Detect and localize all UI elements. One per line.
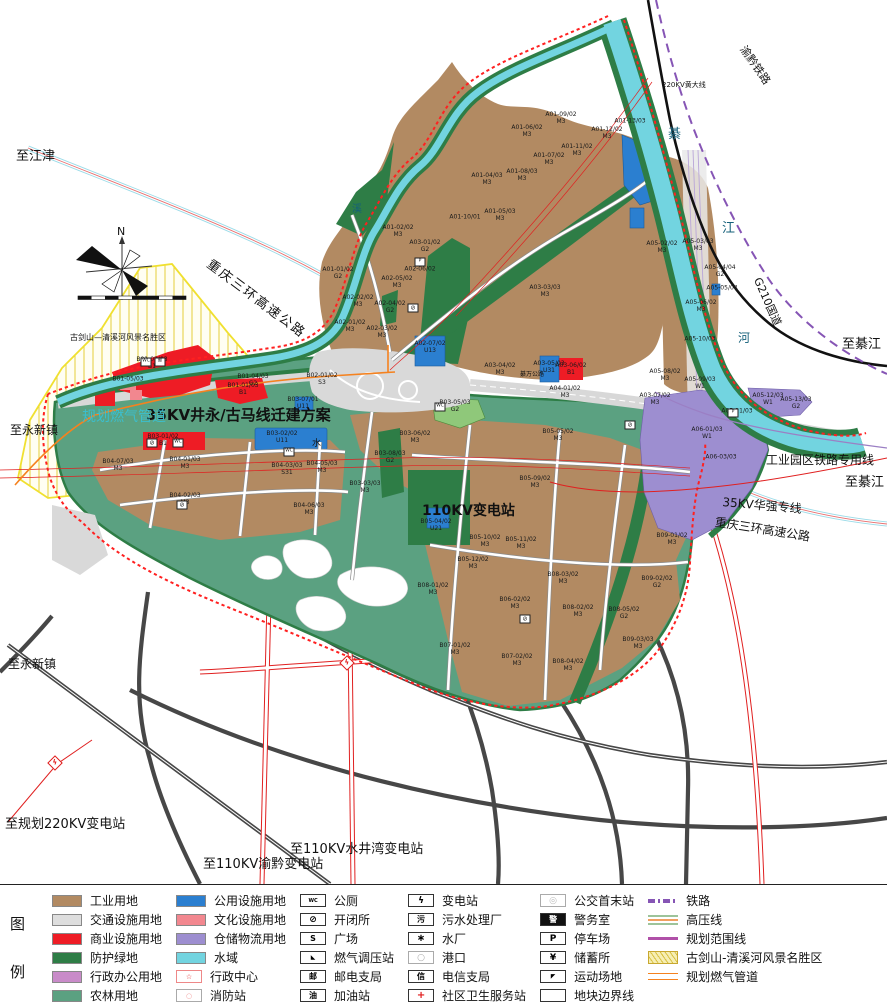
legend-swatch-symbol-icon: WC bbox=[300, 894, 326, 907]
legend-label: 变电站 bbox=[442, 892, 478, 909]
legend-label: 工业用地 bbox=[90, 892, 138, 909]
legend-swatch-hatch-icon bbox=[648, 951, 678, 964]
legend-label: 电信支局 bbox=[442, 968, 490, 985]
legend-label: 停车场 bbox=[574, 930, 610, 947]
legend-label: 燃气调压站 bbox=[334, 949, 394, 966]
scale-bar bbox=[78, 296, 186, 300]
legend-column-3: WC公厕⊘开闭所S广场◣燃气调压站邮邮电支局油加油站 bbox=[300, 891, 394, 1005]
legend-label: 铁路 bbox=[686, 892, 710, 909]
legend-swatch-symbol-icon: 油 bbox=[300, 989, 326, 1002]
legend-swatch-symbol-icon: ⊘ bbox=[300, 913, 326, 926]
legend-swatch-symbol-icon: ◤ bbox=[540, 970, 566, 983]
legend-item: 古剑山-清溪河风景名胜区 bbox=[648, 948, 822, 967]
legend-panel: 图 例 工业用地交通设施用地商业设施用地防护绿地行政办公用地农林用地公用设施用地… bbox=[0, 884, 887, 1006]
legend-label: 农林用地 bbox=[90, 987, 138, 1004]
legend-item: ◎公交首末站 bbox=[540, 891, 634, 910]
legend-swatch-symbol-icon: ○ bbox=[408, 951, 434, 964]
legend-swatch-fill-icon bbox=[176, 933, 206, 945]
legend-swatch-symbol-icon: 污 bbox=[408, 913, 434, 926]
legend-item: 邮邮电支局 bbox=[300, 967, 394, 986]
map-canvas bbox=[0, 0, 887, 884]
legend-item: 仓储物流用地 bbox=[176, 929, 286, 948]
legend-label: 消防站 bbox=[210, 987, 246, 1004]
legend-label: 污水处理厂 bbox=[442, 911, 502, 928]
legend-swatch-symbol-icon: ∗ bbox=[408, 932, 434, 945]
legend-swatch-fill-icon bbox=[52, 971, 82, 983]
legend-column-1: 工业用地交通设施用地商业设施用地防护绿地行政办公用地农林用地 bbox=[52, 891, 162, 1005]
legend-label: 运动场地 bbox=[574, 968, 622, 985]
legend-title-char-2: 例 bbox=[10, 961, 25, 982]
legend-item: 公用设施用地 bbox=[176, 891, 286, 910]
legend-swatch-fill-icon bbox=[176, 952, 206, 964]
legend-swatch-fill-icon bbox=[52, 952, 82, 964]
legend-swatch-symbol-icon: ○ bbox=[176, 989, 202, 1002]
legend-label: 规划范围线 bbox=[686, 930, 746, 947]
legend-item: WC公厕 bbox=[300, 891, 394, 910]
legend-label: 水厂 bbox=[442, 930, 466, 947]
legend-label: 防护绿地 bbox=[90, 949, 138, 966]
legend-label: 邮电支局 bbox=[334, 968, 382, 985]
legend-item: 警警务室 bbox=[540, 910, 634, 929]
legend-item: ¥储蓄所 bbox=[540, 948, 634, 967]
legend-item: ∗水厂 bbox=[408, 929, 526, 948]
legend-swatch-symbol-icon: ◣ bbox=[300, 951, 326, 964]
legend-item: ○消防站 bbox=[176, 986, 286, 1005]
legend-column-2: 公用设施用地文化设施用地仓储物流用地水域☆行政中心○消防站 bbox=[176, 891, 286, 1005]
legend-item: ◤运动场地 bbox=[540, 967, 634, 986]
legend-item: 铁路 bbox=[648, 891, 822, 910]
legend-item: 文化设施用地 bbox=[176, 910, 286, 929]
legend-item: 行政办公用地 bbox=[52, 967, 162, 986]
legend-item: P停车场 bbox=[540, 929, 634, 948]
legend-swatch-fill-icon bbox=[176, 895, 206, 907]
legend-item: +社区卫生服务站 bbox=[408, 986, 526, 1005]
legend-column-6: 铁路高压线规划范围线古剑山-清溪河风景名胜区规划燃气管道 bbox=[648, 891, 822, 1005]
legend-swatch-fill-icon bbox=[52, 933, 82, 945]
legend-label: 行政办公用地 bbox=[90, 968, 162, 985]
legend-item: 农林用地 bbox=[52, 986, 162, 1005]
legend-label: 商业设施用地 bbox=[90, 930, 162, 947]
legend-title-char-1: 图 bbox=[10, 913, 25, 934]
legend-column-5: ◎公交首末站警警务室P停车场¥储蓄所◤运动场地地块边界线 bbox=[540, 891, 634, 1005]
legend-item: 高压线 bbox=[648, 910, 822, 929]
legend-swatch-symbol-icon: + bbox=[408, 989, 434, 1002]
legend-swatch-hv-icon bbox=[648, 915, 678, 925]
legend-label: 广场 bbox=[334, 930, 358, 947]
legend-label: 高压线 bbox=[686, 911, 722, 928]
legend-item: 地块边界线 bbox=[540, 986, 634, 1005]
legend-swatch-symbol-icon: ☆ bbox=[176, 970, 202, 983]
legend-item: 水域 bbox=[176, 948, 286, 967]
legend-label: 社区卫生服务站 bbox=[442, 987, 526, 1004]
legend-swatch-fill-icon bbox=[176, 914, 206, 926]
green-b03 bbox=[378, 428, 404, 498]
legend-item: 污污水处理厂 bbox=[408, 910, 526, 929]
legend-item: 防护绿地 bbox=[52, 948, 162, 967]
legend-label: 水域 bbox=[214, 949, 238, 966]
legend-label: 仓储物流用地 bbox=[214, 930, 286, 947]
legend-item: 规划燃气管道 bbox=[648, 967, 822, 986]
legend-item: S广场 bbox=[300, 929, 394, 948]
legend-item: ϟ变电站 bbox=[408, 891, 526, 910]
legend-label: 交通设施用地 bbox=[90, 911, 162, 928]
legend-columns: 工业用地交通设施用地商业设施用地防护绿地行政办公用地农林用地公用设施用地文化设施… bbox=[52, 891, 836, 1005]
legend-label: 港口 bbox=[442, 949, 466, 966]
legend-swatch-symbol-icon: 信 bbox=[408, 970, 434, 983]
legend-swatch-symbol-icon: 邮 bbox=[300, 970, 326, 983]
legend-item: 交通设施用地 bbox=[52, 910, 162, 929]
legend-item: 信电信支局 bbox=[408, 967, 526, 986]
legend-swatch-symbol-icon: 警 bbox=[540, 913, 566, 926]
legend-swatch-symbol-icon: ◎ bbox=[540, 894, 566, 907]
legend-swatch-fill-icon bbox=[52, 895, 82, 907]
legend-label: 地块边界线 bbox=[574, 987, 634, 1004]
legend-label: 公厕 bbox=[334, 892, 358, 909]
legend-swatch-rail-icon bbox=[648, 899, 678, 903]
legend-label: 储蓄所 bbox=[574, 949, 610, 966]
legend-label: 警务室 bbox=[574, 911, 610, 928]
legend-item: ○港口 bbox=[408, 948, 526, 967]
legend-swatch-fill-icon bbox=[52, 914, 82, 926]
legend-item: 油加油站 bbox=[300, 986, 394, 1005]
legend-label: 行政中心 bbox=[210, 968, 258, 985]
legend-swatch-symbol-icon: S bbox=[300, 932, 326, 945]
legend-label: 古剑山-清溪河风景名胜区 bbox=[686, 949, 822, 966]
legend-label: 文化设施用地 bbox=[214, 911, 286, 928]
legend-label: 规划燃气管道 bbox=[686, 968, 758, 985]
legend-swatch-solid-icon bbox=[648, 937, 678, 940]
legend-item: ⊘开闭所 bbox=[300, 910, 394, 929]
legend-swatch-symbol-icon: ϟ bbox=[408, 894, 434, 907]
legend-swatch-symbol-icon: P bbox=[540, 932, 566, 945]
legend-label: 开闭所 bbox=[334, 911, 370, 928]
legend-item: 规划范围线 bbox=[648, 929, 822, 948]
legend-item: ◣燃气调压站 bbox=[300, 948, 394, 967]
legend-swatch-gas-icon bbox=[648, 973, 678, 980]
legend-item: ☆行政中心 bbox=[176, 967, 286, 986]
legend-title: 图 例 bbox=[10, 899, 25, 995]
legend-label: 公用设施用地 bbox=[214, 892, 286, 909]
legend-label: 加油站 bbox=[334, 987, 370, 1004]
legend-label: 公交首末站 bbox=[574, 892, 634, 909]
legend-swatch-fill-icon bbox=[52, 990, 82, 1002]
legend-swatch-symbol-icon bbox=[540, 989, 566, 1002]
legend-swatch-symbol-icon: ¥ bbox=[540, 951, 566, 964]
legend-column-4: ϟ变电站污污水处理厂∗水厂○港口信电信支局+社区卫生服务站 bbox=[408, 891, 526, 1005]
legend-item: 商业设施用地 bbox=[52, 929, 162, 948]
land-use-planning-map: 至江津重庆三环高速公路220KV黄大线渝黔铁路G210国道至綦江至綦江工业园区铁… bbox=[0, 0, 887, 1006]
legend-item: 工业用地 bbox=[52, 891, 162, 910]
